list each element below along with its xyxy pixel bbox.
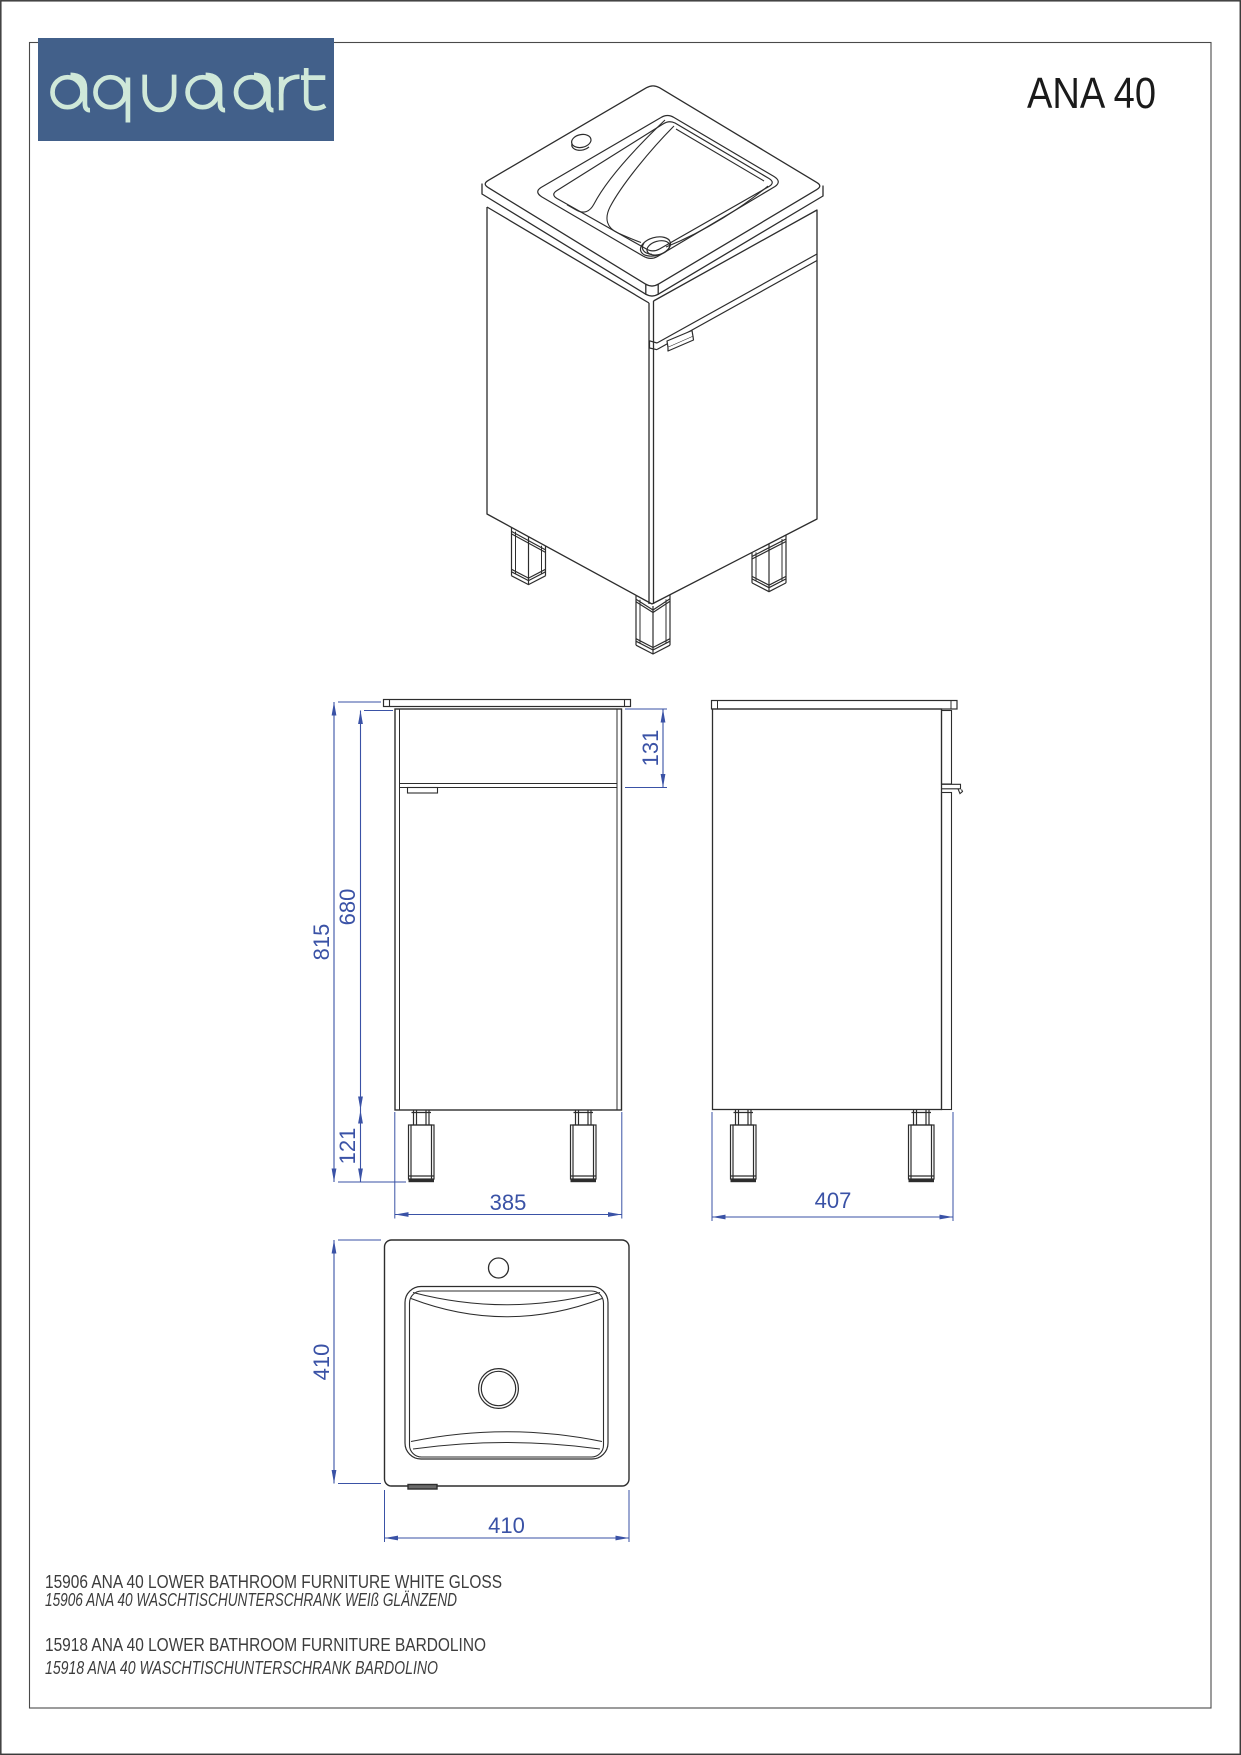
svg-text:385: 385 [490, 1190, 527, 1215]
svg-text:410: 410 [309, 1344, 334, 1381]
svg-text:15906 ANA 40 LOWER BATHROOM FU: 15906 ANA 40 LOWER BATHROOM FURNITURE WH… [45, 1572, 502, 1592]
svg-text:15906 ANA 40 WASCHTISCHUNTERSC: 15906 ANA 40 WASCHTISCHUNTERSCHRANK WEIß… [45, 1590, 457, 1610]
svg-text:131: 131 [638, 730, 663, 767]
svg-text:ANA 40: ANA 40 [1027, 69, 1156, 118]
svg-text:680: 680 [335, 889, 360, 926]
svg-text:121: 121 [335, 1128, 360, 1165]
svg-text:410: 410 [488, 1513, 525, 1538]
svg-text:407: 407 [815, 1188, 852, 1213]
svg-text:15918 ANA 40 LOWER BATHROOM FU: 15918 ANA 40 LOWER BATHROOM FURNITURE BA… [45, 1635, 486, 1655]
svg-text:15918 ANA 40 WASCHTISCHUNTERSC: 15918 ANA 40 WASCHTISCHUNTERSCHRANK BARD… [45, 1658, 438, 1678]
svg-text:815: 815 [309, 924, 334, 961]
